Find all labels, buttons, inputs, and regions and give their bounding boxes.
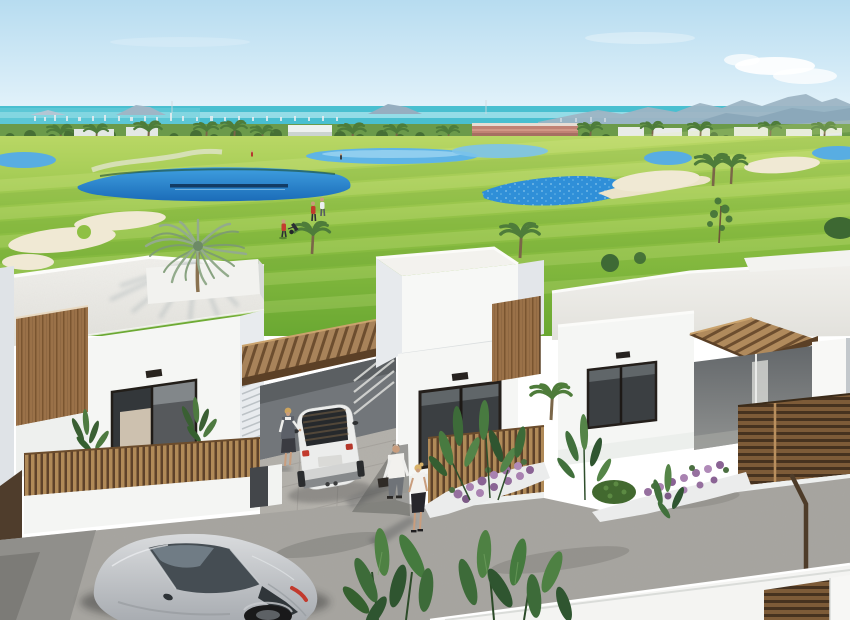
gate-pillar [830, 575, 850, 620]
villa-right [531, 312, 850, 502]
wood-clad-column-center [492, 296, 540, 382]
briefcase [377, 477, 389, 487]
render-image [0, 0, 850, 620]
wall-opening [250, 466, 268, 508]
villa-left [0, 220, 264, 566]
left-wall-sliver [0, 266, 14, 486]
wood-clad-column [16, 306, 88, 426]
distant-building-pink [472, 123, 578, 137]
villa-right-horizontal-fence [738, 394, 850, 486]
villa-right-window [588, 361, 656, 428]
